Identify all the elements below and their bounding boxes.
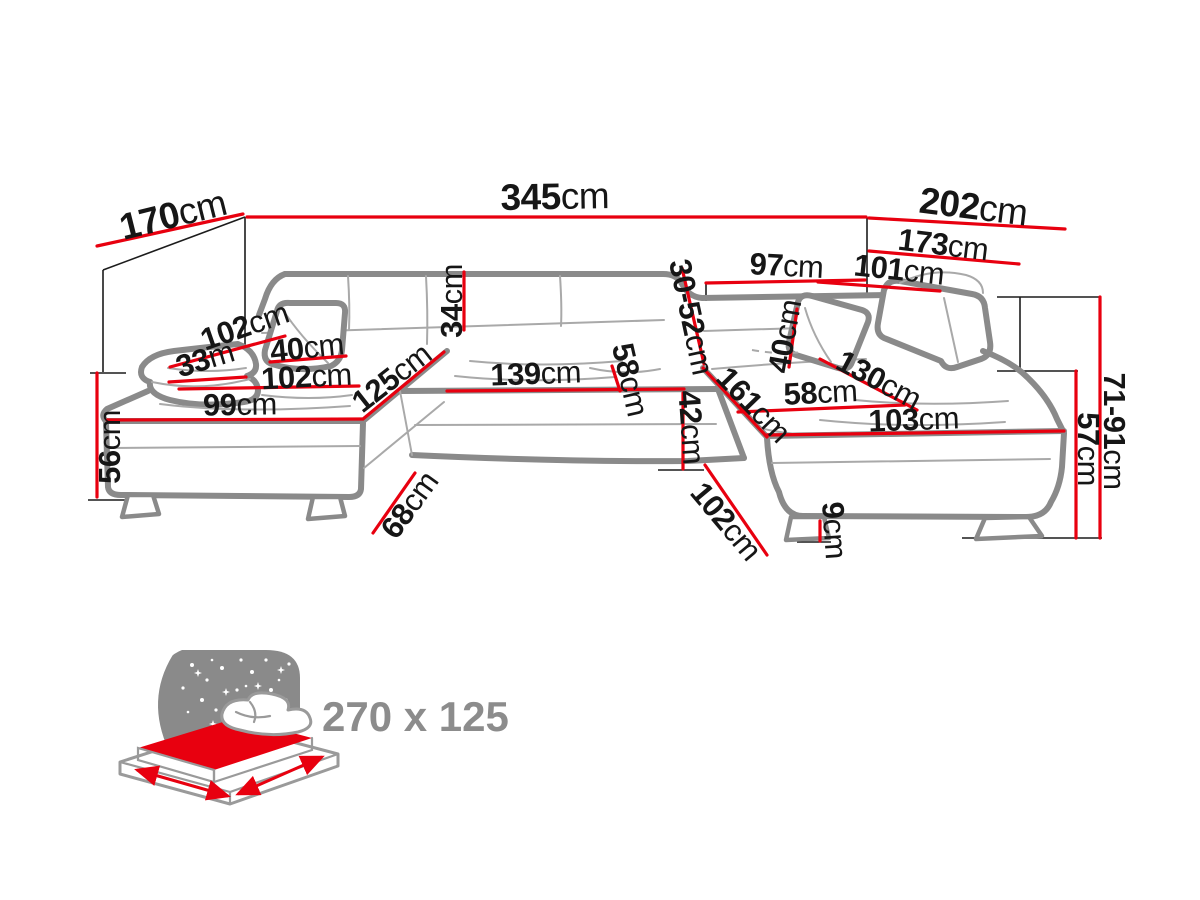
dim-30-52-label: 30-52cm — [662, 256, 721, 378]
backrest-seam — [560, 276, 561, 326]
dim-102c-label: 102cm — [684, 475, 769, 567]
dim-125-label: 125cm — [345, 336, 438, 419]
dim-170-label: 170cm — [115, 182, 230, 248]
dim-97-label: 97cm — [749, 246, 825, 285]
sofa-leg — [976, 517, 1042, 539]
backrest-seam — [348, 276, 349, 330]
right-chaise-seam — [772, 459, 1050, 463]
backrest-seam — [426, 276, 427, 344]
left-chaise-front-face — [106, 423, 363, 497]
dim-56-label: 56cm — [92, 410, 127, 484]
sofa-leg — [122, 495, 159, 517]
right-armrest — [983, 351, 1063, 431]
dim-345-label: 345cm — [500, 175, 609, 218]
dim-34-label: 34cm — [434, 264, 469, 338]
sleeping-area-size-label: 270 x 125 — [322, 693, 509, 740]
right-headrest-cushion — [878, 281, 991, 368]
dim-40r-label: 40cm — [761, 297, 808, 376]
dim-139-label: 139cm — [490, 354, 582, 392]
middle-left-edge — [400, 391, 412, 455]
right-chaise-front-face — [767, 433, 1064, 517]
left-chaise-seam — [109, 446, 360, 448]
sleeping-function-icon: 270 x 125 — [120, 650, 509, 804]
sofa-dimension-diagram: 170cm 345cm 202cm 173cm 101cm 97cm 30-52… — [0, 0, 1200, 900]
middle-seam — [415, 424, 716, 425]
dim-9-label: 9cm — [815, 501, 854, 560]
dim-99-label: 99cm — [203, 386, 277, 422]
dim-57-label: 57cm — [1071, 412, 1106, 486]
sofa-leg — [308, 497, 345, 519]
dim-58m-label: 58cm — [605, 340, 656, 420]
dim-68-label: 68cm — [374, 465, 446, 545]
dim-42-label: 42cm — [671, 389, 711, 465]
